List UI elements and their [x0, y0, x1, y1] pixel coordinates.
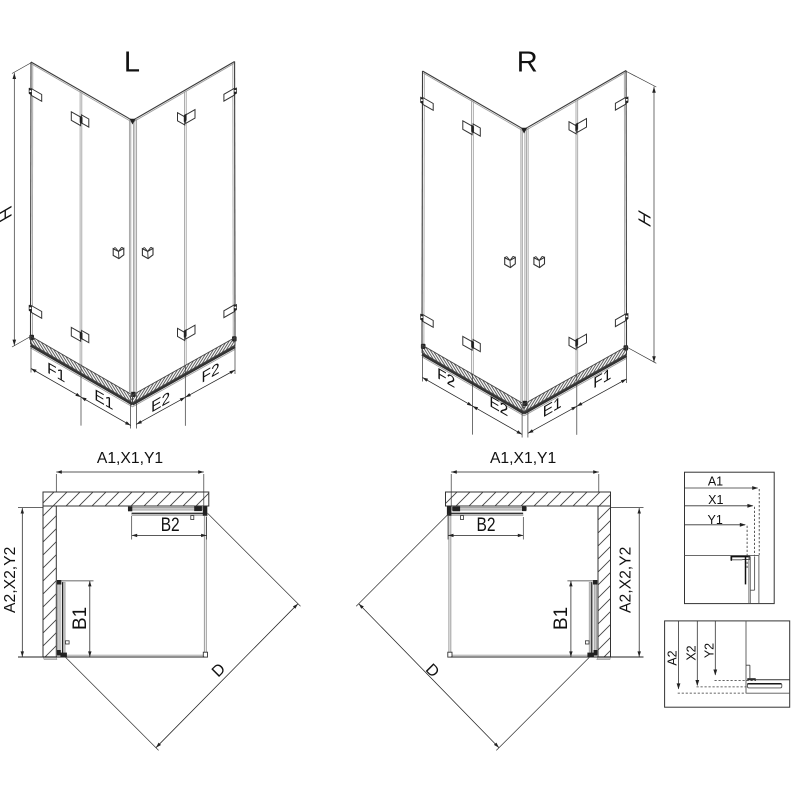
svg-text:A1,X1,Y1: A1,X1,Y1 — [490, 450, 556, 467]
svg-text:A2,X2,Y2: A2,X2,Y2 — [2, 547, 19, 613]
svg-text:Y2: Y2 — [703, 643, 717, 658]
svg-text:R: R — [517, 46, 538, 78]
svg-text:X2: X2 — [684, 645, 698, 660]
svg-text:A2,X2,Y2: A2,X2,Y2 — [617, 547, 634, 613]
svg-text:B1: B1 — [551, 607, 572, 630]
svg-text:B1: B1 — [70, 607, 91, 630]
svg-text:A1: A1 — [708, 474, 723, 488]
svg-text:X1: X1 — [708, 493, 723, 507]
svg-text:L: L — [124, 46, 140, 78]
svg-text:A1,X1,Y1: A1,X1,Y1 — [97, 450, 163, 467]
svg-text:A2: A2 — [665, 650, 679, 665]
svg-text:B2: B2 — [477, 515, 496, 536]
svg-text:B2: B2 — [161, 515, 180, 536]
